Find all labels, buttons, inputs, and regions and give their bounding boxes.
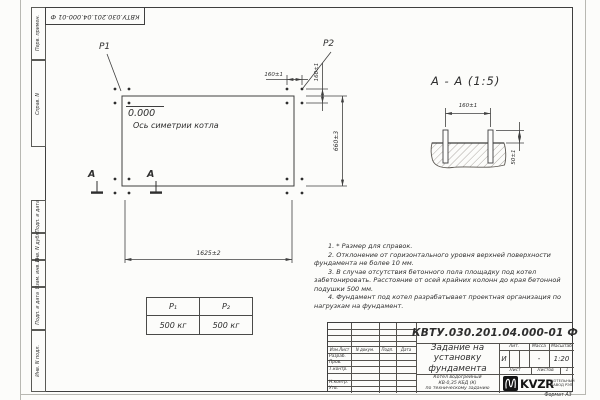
title-block: Изм.Лист N докум. Подп. Дата Разраб. Про… xyxy=(327,322,573,392)
load-table-header-p1: P₁ xyxy=(147,298,200,316)
note-4: 4. Фундамент под котел разрабатывает про… xyxy=(314,293,580,310)
tb-col-izm-list: Изм.Лист xyxy=(328,347,351,353)
tb-drawing-title: Задание на установку фундамента xyxy=(416,343,499,374)
tb-col-n-dokum: N докум. xyxy=(351,347,379,353)
dim-section-protrusion: 50±1 xyxy=(511,136,519,178)
section-concrete-pad xyxy=(431,143,506,168)
section-view-title: А - А (1:5) xyxy=(431,74,500,88)
load-table-value-p1: 500 кг xyxy=(147,316,200,334)
tb-logo-text: KVZR xyxy=(520,377,554,391)
note-1: 1. * Размер для справок. xyxy=(314,242,580,251)
kvzr-logo-icon xyxy=(503,376,518,391)
dim-plan-width: 1625±2 xyxy=(150,250,267,257)
tb-mass-value: - xyxy=(529,350,549,367)
tb-lit-value: И xyxy=(499,350,509,367)
note-2: 2. Отклонение от горизонтального уровня … xyxy=(314,251,580,268)
boiler-axis-label: Ось симетрии котла xyxy=(133,121,219,130)
tb-scale-value: 1:20 xyxy=(549,350,574,367)
tb-sheets-value: 1 xyxy=(560,367,574,374)
section-mark-letter-left: A xyxy=(88,169,95,180)
dim-bolt-spacing-y: 160±1 xyxy=(314,51,322,93)
tb-col-data: Дата xyxy=(396,347,416,353)
tb-sheet-label: Лист xyxy=(499,367,531,374)
tb-product: Котел водогрейный КВ-0,35 КБД (К) по тех… xyxy=(416,375,499,393)
drawing-sheet: Перв. примен. Справ. N Подп. и дата Инв.… xyxy=(0,0,600,400)
format-label: Формат А3 xyxy=(533,393,583,398)
tb-product-line3: по техническому заданию xyxy=(416,386,499,392)
tb-sheets-label: Листов xyxy=(531,367,560,374)
dim-plan-height: 660±3 xyxy=(333,120,341,162)
plan-point-p2-label: P2 xyxy=(323,39,334,49)
leader-lines xyxy=(107,52,331,91)
tb-lit-label: Лит. xyxy=(499,343,529,350)
plan-dimensions xyxy=(125,63,347,263)
dim-section-bolt-spacing: 160±1 xyxy=(446,103,490,109)
tb-row-prov: Пров. xyxy=(329,360,342,366)
dim-bolt-spacing-x: 160±1 xyxy=(248,72,283,78)
tb-col-podp: Подп. xyxy=(379,347,396,353)
tb-mass-label: Масса xyxy=(529,343,549,350)
elevation-value: 0.000 xyxy=(128,108,155,119)
tb-logo-caption: КОТЕЛЬНЫЙ ЗАВОД РЭП xyxy=(551,379,574,388)
load-table-header-p2: P₂ xyxy=(200,298,252,316)
section-mark-letter-right: A xyxy=(147,169,154,180)
note-3: 3. В случае отсутствия бетонного пола пл… xyxy=(314,268,580,294)
tb-row-razrab: Разраб. xyxy=(329,354,346,360)
tb-doc-number: КВТУ.030.201.04.000-01 Ф xyxy=(416,323,574,343)
tb-logo-area: KVZR КОТЕЛЬНЫЙ ЗАВОД РЭП xyxy=(499,374,574,393)
plan-anchor-bolt-dots xyxy=(114,88,304,195)
tb-row-utv: Утв. xyxy=(329,386,338,392)
tb-row-tkontr: Т.контр. xyxy=(329,367,348,373)
tb-scale-label: Масштаб xyxy=(549,343,574,350)
section-cut-marks xyxy=(91,181,162,193)
plan-point-p1-label: P1 xyxy=(99,42,110,52)
load-table-value-p2: 500 кг xyxy=(200,316,252,334)
technical-notes: 1. * Размер для справок. 2. Отклонение о… xyxy=(314,242,580,311)
load-table: P₁ P₂ 500 кг 500 кг xyxy=(146,297,253,335)
